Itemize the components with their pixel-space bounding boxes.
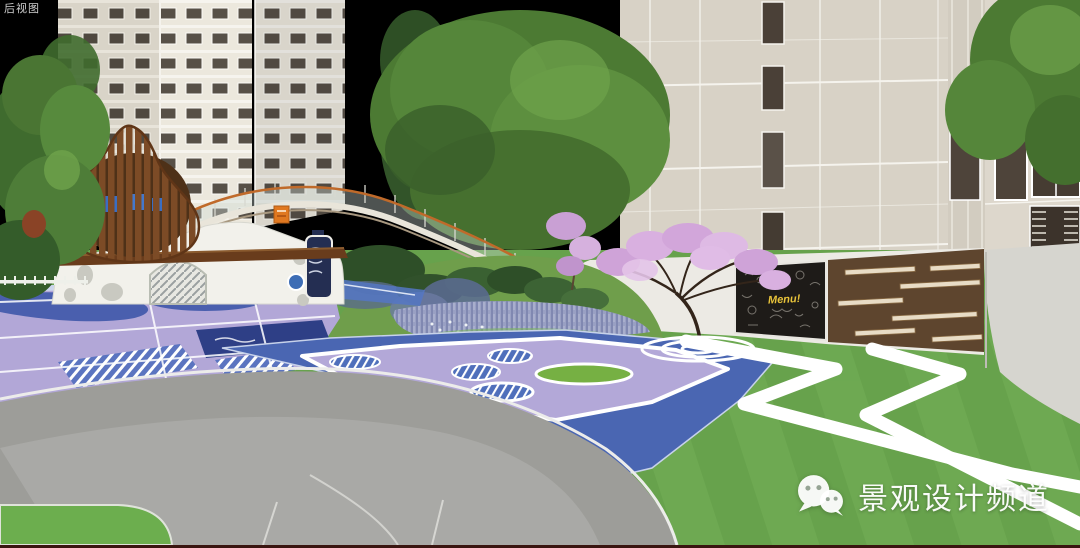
- menu-board-text: Menu!: [768, 293, 801, 307]
- red-foliage-accent: [22, 210, 46, 238]
- wood-slat-wall: [828, 249, 984, 352]
- bridge-sign: [274, 206, 289, 223]
- watermark: 景观设计频道: [794, 473, 1050, 519]
- rendering-image: Menu!: [0, 0, 1080, 548]
- watermark-text: 景观设计频道: [858, 474, 1050, 518]
- wechat-icon: [794, 473, 848, 519]
- landscape-render-scene: Menu!: [0, 0, 1080, 545]
- base-arch-opening: [150, 262, 206, 305]
- grass-circle: [536, 364, 632, 384]
- climbing-panel: [306, 230, 332, 298]
- view-label: 后视图: [4, 2, 40, 16]
- corner-grass-patch: [0, 505, 172, 545]
- porthole-window: [288, 274, 304, 290]
